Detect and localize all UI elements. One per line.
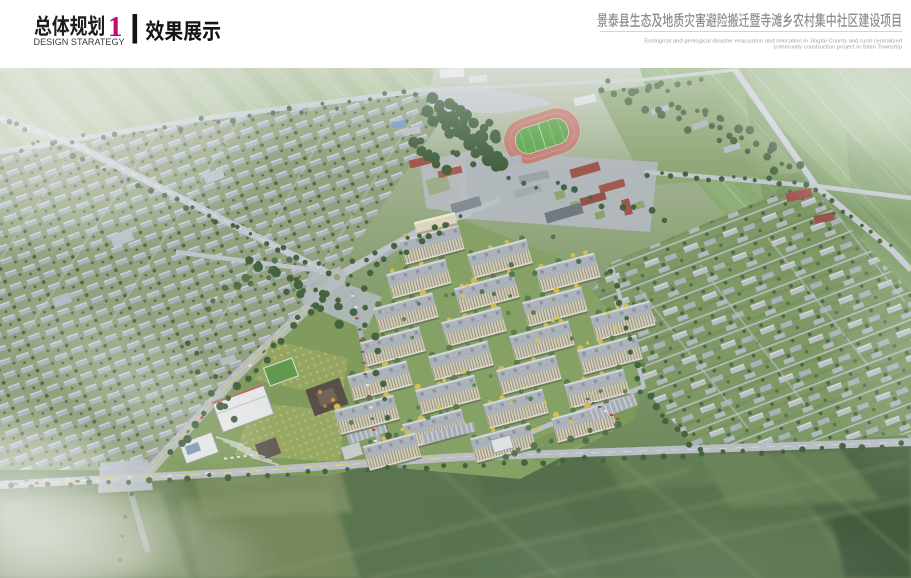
svg-text:DESIGN STARATEGY: DESIGN STARATEGY <box>34 37 125 47</box>
svg-text:community construction project: community construction project in Sitan … <box>773 45 902 51</box>
svg-text:Ecological and geological disa: Ecological and geological disaster evacu… <box>644 38 902 44</box>
